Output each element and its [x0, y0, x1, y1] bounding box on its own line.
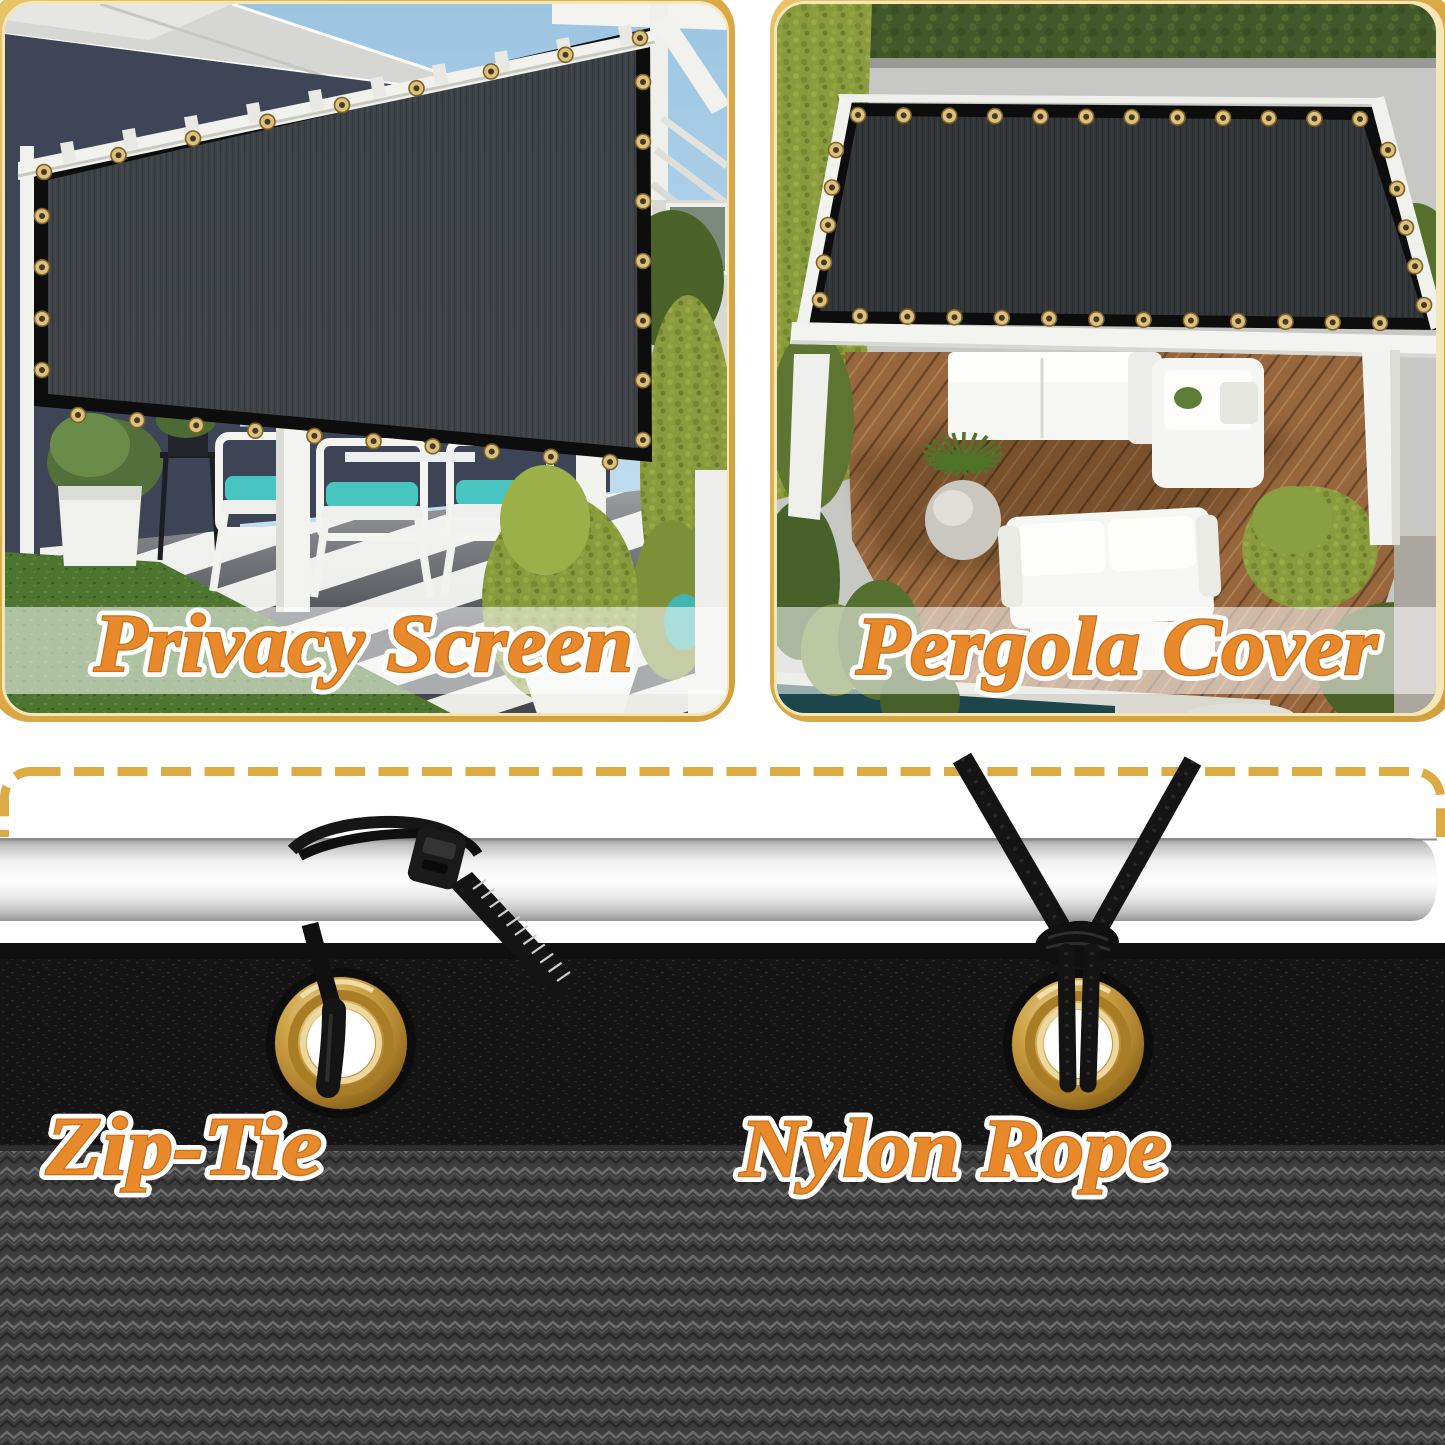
svg-text:Pergola Cover: Pergola Cover	[855, 600, 1379, 692]
svg-text:Nylon Rope: Nylon Rope	[739, 1102, 1167, 1194]
svg-text:Privacy Screen: Privacy Screen	[93, 597, 633, 689]
svg-text:Zip-Tie: Zip-Tie	[45, 1100, 322, 1192]
